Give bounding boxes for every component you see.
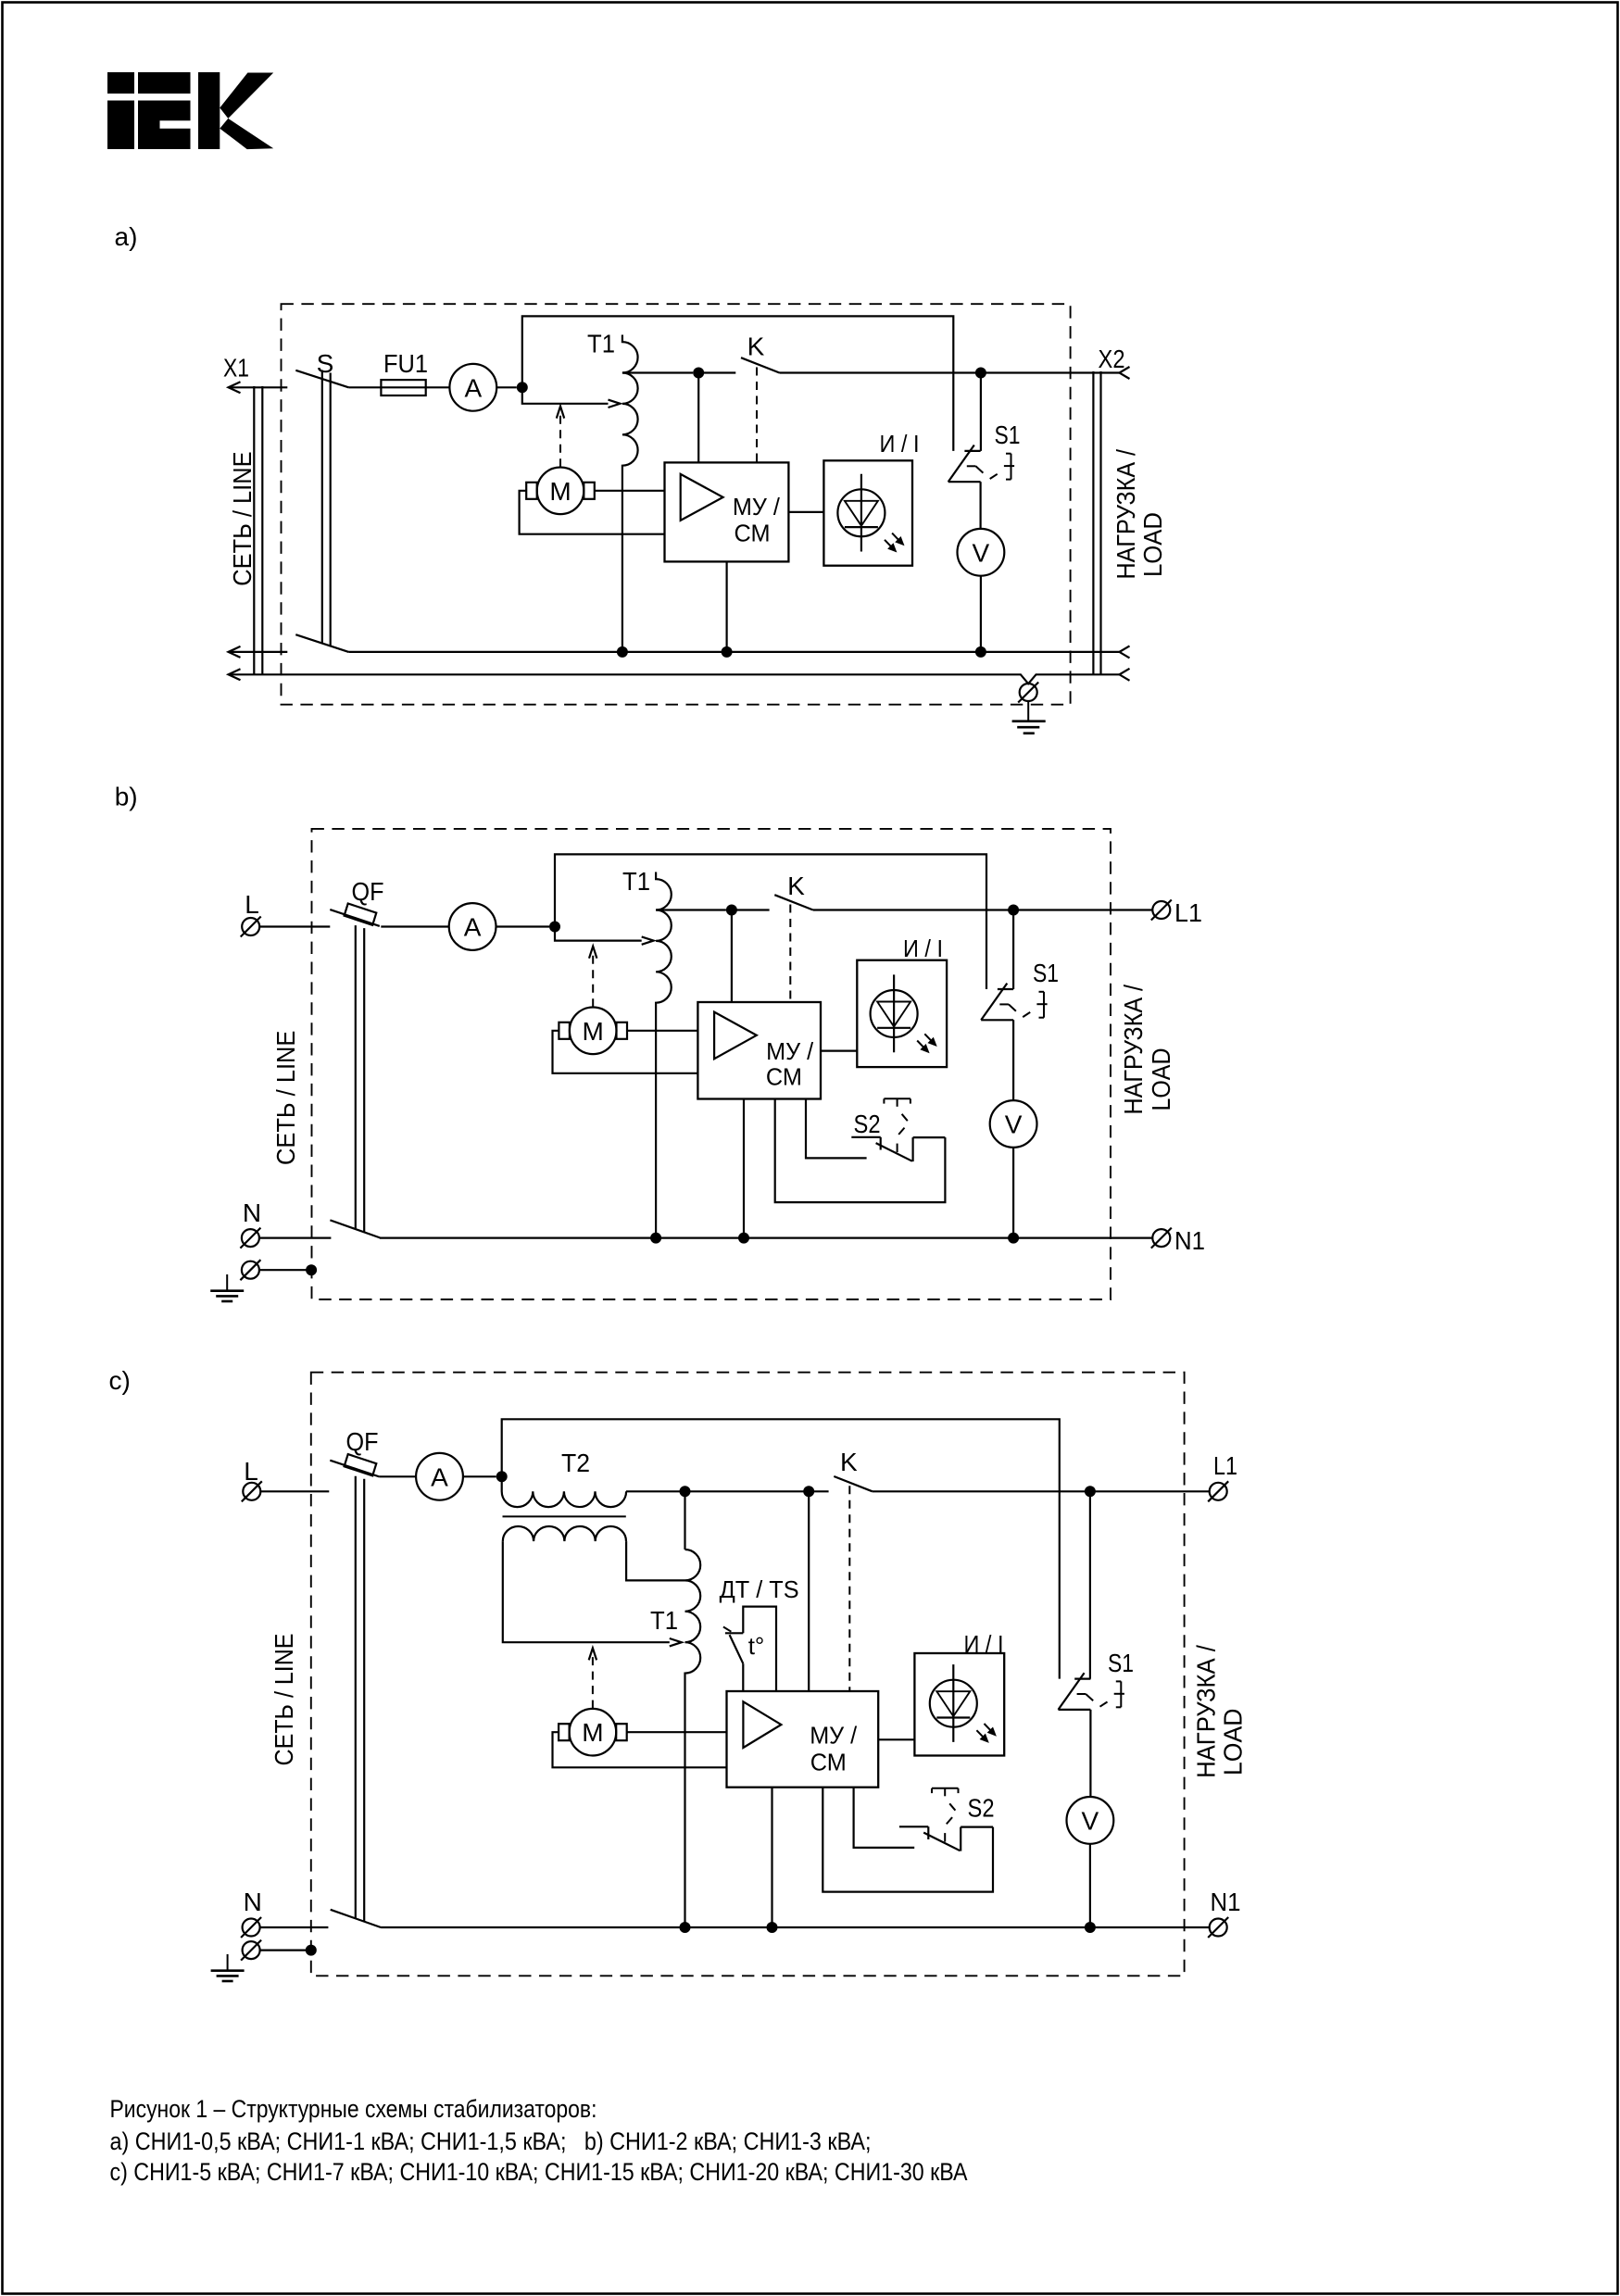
svg-text:LOAD: LOAD	[1138, 512, 1167, 577]
svg-text:V: V	[973, 538, 990, 567]
svg-text:S2: S2	[968, 1794, 995, 1823]
svg-text:S2: S2	[854, 1110, 881, 1138]
svg-text:М: М	[549, 477, 571, 506]
svg-text:НАГРУЗКА /: НАГРУЗКА /	[1191, 1645, 1220, 1778]
svg-text:b): b)	[115, 783, 138, 811]
svg-text:N: N	[243, 1198, 261, 1227]
svg-text:K: K	[840, 1448, 858, 1476]
svg-text:L: L	[245, 890, 259, 919]
svg-text:И / I: И / I	[880, 430, 920, 458]
svg-text:A: A	[464, 373, 482, 402]
svg-text:c) СНИ1-5 кВА; СНИ1-7 кВА; СНИ: c) СНИ1-5 кВА; СНИ1-7 кВА; СНИ1-10 кВА; …	[110, 2158, 968, 2186]
svg-text:LOAD: LOAD	[1219, 1709, 1248, 1775]
svg-text:S1: S1	[995, 420, 1021, 449]
svg-text:K: K	[747, 332, 765, 361]
svg-text:СМ: СМ	[766, 1063, 802, 1091]
svg-text:И / I: И / I	[903, 935, 943, 962]
svg-text:X2: X2	[1099, 345, 1125, 373]
svg-text:T1: T1	[587, 330, 615, 358]
svg-text:A: A	[431, 1462, 448, 1491]
svg-text:НАГРУЗКА /: НАГРУЗКА /	[1119, 985, 1148, 1115]
svg-text:T1: T1	[622, 867, 650, 896]
svg-text:МУ /: МУ /	[733, 493, 781, 521]
svg-text:V: V	[1082, 1806, 1099, 1835]
svg-text:V: V	[1005, 1110, 1023, 1139]
svg-text:СЕТЬ / LINE: СЕТЬ / LINE	[271, 1031, 300, 1165]
svg-text:a): a)	[115, 222, 138, 251]
svg-text:L: L	[244, 1457, 258, 1486]
svg-text:S1: S1	[1033, 959, 1059, 987]
svg-text:LOAD: LOAD	[1147, 1048, 1175, 1111]
svg-text:L1: L1	[1174, 898, 1202, 927]
svg-text:c): c)	[109, 1366, 131, 1395]
svg-text:K: K	[787, 872, 805, 900]
svg-text:N: N	[244, 1888, 262, 1916]
svg-text:a) СНИ1-0,5 кВА; СНИ1-1 кВА; С: a) СНИ1-0,5 кВА; СНИ1-1 кВА; СНИ1-1,5 кВ…	[110, 2127, 872, 2155]
svg-text:СМ: СМ	[810, 1749, 847, 1776]
svg-text:НАГРУЗКА /: НАГРУЗКА /	[1111, 449, 1140, 580]
svg-text:A: A	[464, 913, 482, 942]
svg-text:X1: X1	[223, 354, 249, 383]
svg-text:МУ /: МУ /	[766, 1037, 814, 1065]
svg-text:М: М	[583, 1017, 604, 1046]
svg-text:СЕТЬ / LINE: СЕТЬ / LINE	[270, 1634, 298, 1766]
svg-text:СЕТЬ / LINE: СЕТЬ / LINE	[228, 451, 257, 585]
svg-text:S1: S1	[1108, 1649, 1134, 1677]
svg-text:N1: N1	[1174, 1226, 1205, 1255]
svg-text:Т2: Т2	[561, 1449, 590, 1477]
svg-text:N1: N1	[1211, 1888, 1241, 1916]
svg-text:МУ /: МУ /	[810, 1722, 858, 1750]
svg-text:QF: QF	[346, 1427, 379, 1456]
svg-text:FU1: FU1	[383, 349, 428, 378]
svg-text:t°: t°	[748, 1632, 765, 1660]
svg-text:L1: L1	[1213, 1451, 1237, 1480]
svg-text:Т1: Т1	[650, 1606, 678, 1635]
svg-text:ДТ / TS: ДТ / TS	[720, 1575, 799, 1603]
svg-text:Рисунок 1 – Структурные схемы: Рисунок 1 – Структурные схемы стабилизат…	[110, 2095, 597, 2123]
svg-text:QF: QF	[352, 877, 384, 906]
svg-text:М: М	[582, 1718, 603, 1747]
svg-text:СМ: СМ	[735, 520, 771, 547]
